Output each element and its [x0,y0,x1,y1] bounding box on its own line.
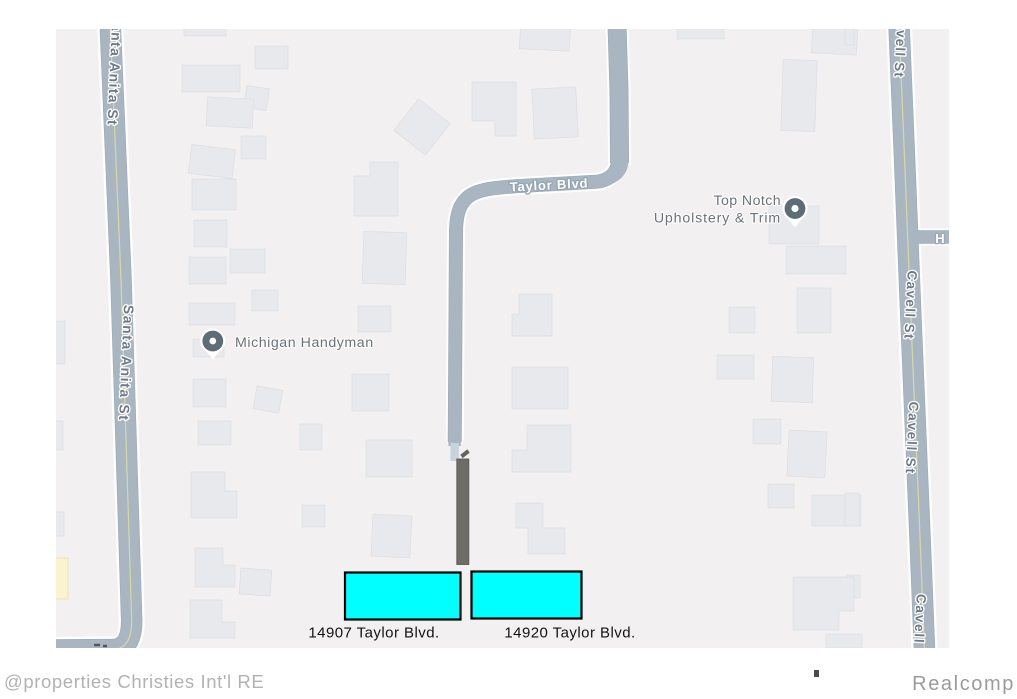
svg-text:Top Notch: Top Notch [714,193,781,209]
svg-text:H: H [935,231,944,246]
svg-text:14907 Taylor Blvd.: 14907 Taylor Blvd. [308,625,439,642]
svg-text:Cavell St: Cavell St [891,29,909,78]
svg-text:14920 Taylor Blvd.: 14920 Taylor Blvd. [504,625,635,642]
svg-text:Cavell: Cavell [911,594,928,645]
svg-text:Upholstery & Trim: Upholstery & Trim [654,211,781,227]
svg-text:Michigan Handyman: Michigan Handyman [235,335,374,351]
